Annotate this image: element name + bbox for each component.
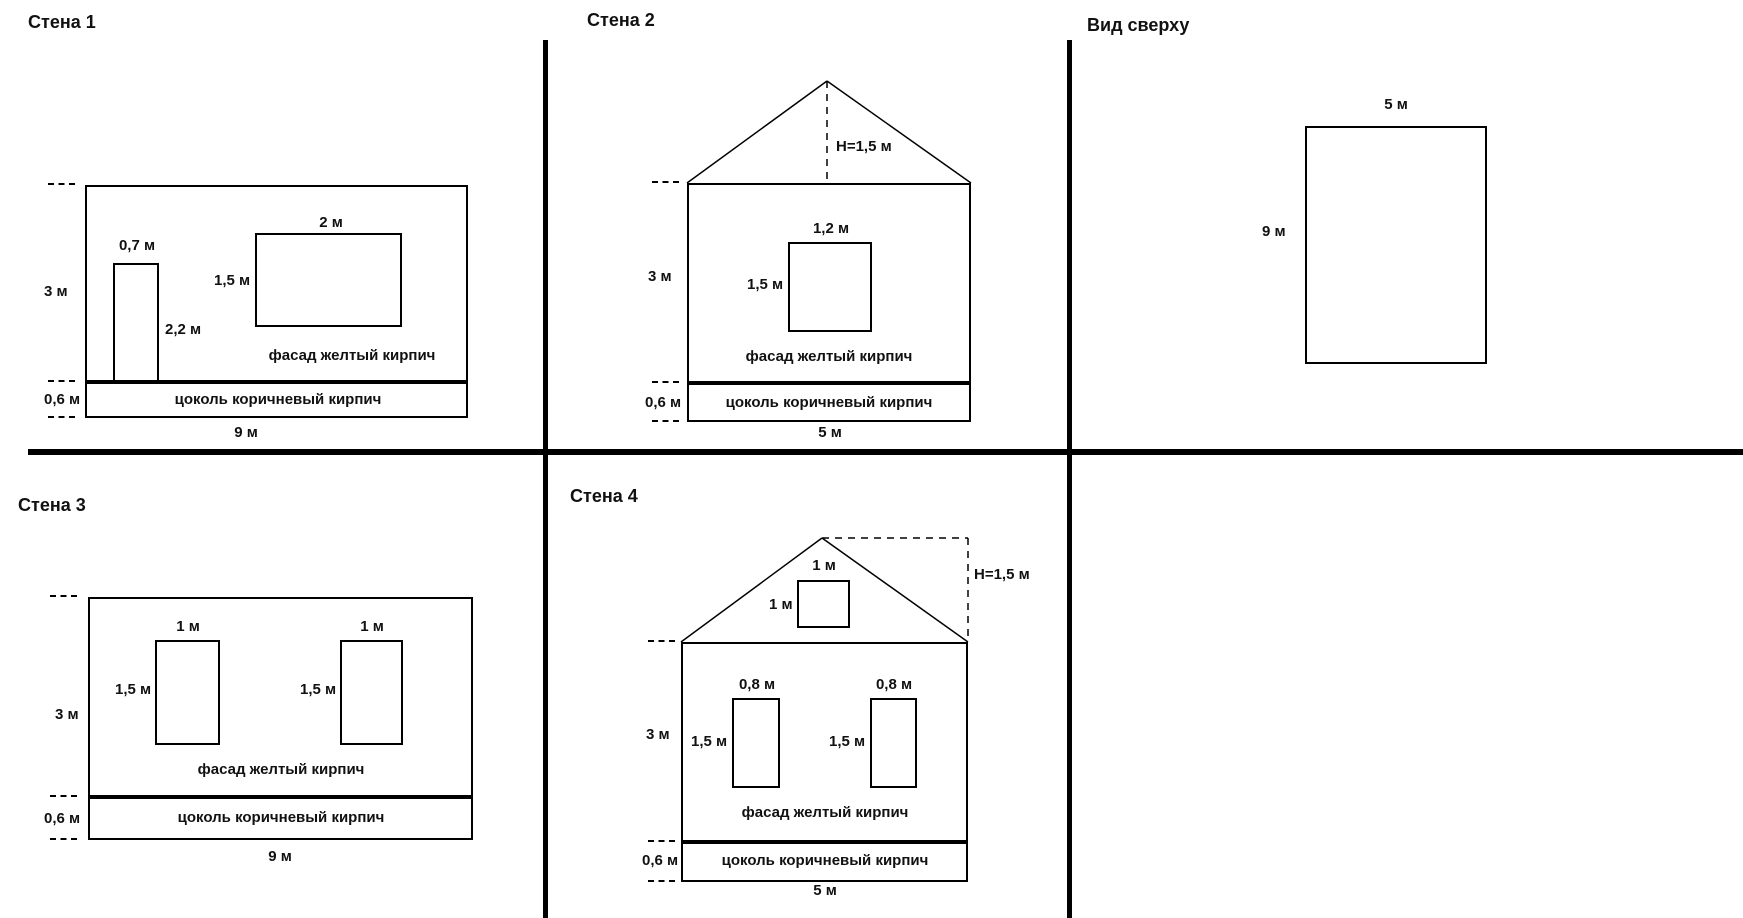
- wall2-window-height-label: 1,5 м: [747, 277, 783, 294]
- wall1-door-width-label: 0,7 м: [119, 238, 155, 255]
- wall2-facade-material-label: фасад желтый кирпич: [746, 349, 913, 366]
- wall3-height-label: 3 м: [55, 707, 79, 724]
- wall4-facade-material-label: фасад желтый кирпич: [742, 805, 909, 822]
- wall3-window-2: [340, 640, 403, 745]
- wall4-window1-width-label: 0,8 м: [739, 677, 775, 694]
- wall2-width-label: 5 м: [818, 425, 842, 442]
- wall3-facade-material-label: фасад желтый кирпич: [198, 762, 365, 779]
- wall4-gable-window-height-label: 1 м: [769, 597, 793, 614]
- wall4-width-label: 5 м: [813, 883, 837, 900]
- wall1-dash-facade-bottom: [48, 380, 75, 382]
- divider-vertical-2: [1067, 40, 1072, 918]
- wall3-window2-height-label: 1,5 м: [300, 682, 336, 699]
- wall3-window1-width-label: 1 м: [176, 619, 200, 636]
- wall1-plinth-height-label: 0,6 м: [44, 392, 80, 409]
- wall1-window-height-label: 1,5 м: [214, 273, 250, 290]
- wall2-dash-plinth-bottom: [652, 420, 679, 422]
- wall4-window-2: [870, 698, 917, 788]
- wall1-plinth-material-label: цоколь коричневый кирпич: [175, 392, 382, 409]
- wall1-window-width-label: 2 м: [319, 215, 343, 232]
- top-view-depth-label: 9 м: [1262, 224, 1286, 241]
- divider-vertical-1: [543, 40, 548, 918]
- wall4-plinth-material-label: цоколь коричневый кирпич: [722, 853, 929, 870]
- wall2-dash-facade-bottom: [652, 381, 679, 383]
- wall4-window2-width-label: 0,8 м: [876, 677, 912, 694]
- wall4-dash-facade-bottom: [648, 840, 675, 842]
- wall2-plinth-material-label: цоколь коричневый кирпич: [726, 395, 933, 412]
- wall4-dash-top: [648, 640, 675, 642]
- wall2-window: [788, 242, 872, 332]
- divider-horizontal: [28, 449, 1743, 455]
- wall3-dash-facade-bottom: [50, 795, 77, 797]
- wall2-title: Стена 2: [587, 10, 655, 31]
- wall1-facade-material-label: фасад желтый кирпич: [269, 348, 436, 365]
- top-view-width-label: 5 м: [1384, 97, 1408, 114]
- wall3-dash-top: [50, 595, 77, 597]
- wall4-window-1: [732, 698, 780, 788]
- top-view-outline: [1305, 126, 1487, 364]
- wall3-window1-height-label: 1,5 м: [115, 682, 151, 699]
- wall2-roof: [660, 70, 990, 195]
- wall2-roof-right-slope: [827, 81, 971, 183]
- wall4-dash-plinth-bottom: [648, 880, 675, 882]
- wall1-height-label: 3 м: [44, 284, 68, 301]
- wall1-window: [255, 233, 402, 327]
- top-view-title: Вид сверху: [1087, 15, 1189, 36]
- wall4-height-label: 3 м: [646, 727, 670, 744]
- wall4-title: Стена 4: [570, 486, 638, 507]
- wall2-plinth-height-label: 0,6 м: [645, 395, 681, 412]
- wall4-plinth-height-label: 0,6 м: [642, 853, 678, 870]
- wall2-height-label: 3 м: [648, 269, 672, 286]
- wall3-width-label: 9 м: [268, 849, 292, 866]
- wall3-window-1: [155, 640, 220, 745]
- wall4-window2-height-label: 1,5 м: [829, 734, 865, 751]
- wall3-title: Стена 3: [18, 495, 86, 516]
- wall1-door-height-label: 2,2 м: [165, 322, 201, 339]
- wall4-gable-window: [797, 580, 850, 628]
- wall2-dash-top: [652, 181, 679, 183]
- wall3-dash-plinth-bottom: [50, 838, 77, 840]
- wall1-door: [113, 263, 159, 382]
- wall2-roof-height-label: H=1,5 м: [836, 139, 892, 156]
- blueprint-canvas: Стена 1 3 м 0,7 м 2,2 м 2 м 1,5 м фасад …: [0, 0, 1743, 918]
- wall2-roof-left-slope: [687, 81, 827, 183]
- wall4-window1-height-label: 1,5 м: [691, 734, 727, 751]
- wall1-width-label: 9 м: [234, 425, 258, 442]
- wall1-title: Стена 1: [28, 12, 96, 33]
- wall3-plinth-material-label: цоколь коричневый кирпич: [178, 810, 385, 827]
- wall2-window-width-label: 1,2 м: [813, 221, 849, 238]
- wall1-dash-top: [48, 183, 75, 185]
- wall4-roof-height-label: H=1,5 м: [974, 567, 1030, 584]
- wall4-gable-window-width-label: 1 м: [812, 558, 836, 575]
- wall1-dash-plinth-bottom: [48, 416, 75, 418]
- wall3-plinth-height-label: 0,6 м: [44, 811, 80, 828]
- wall3-window2-width-label: 1 м: [360, 619, 384, 636]
